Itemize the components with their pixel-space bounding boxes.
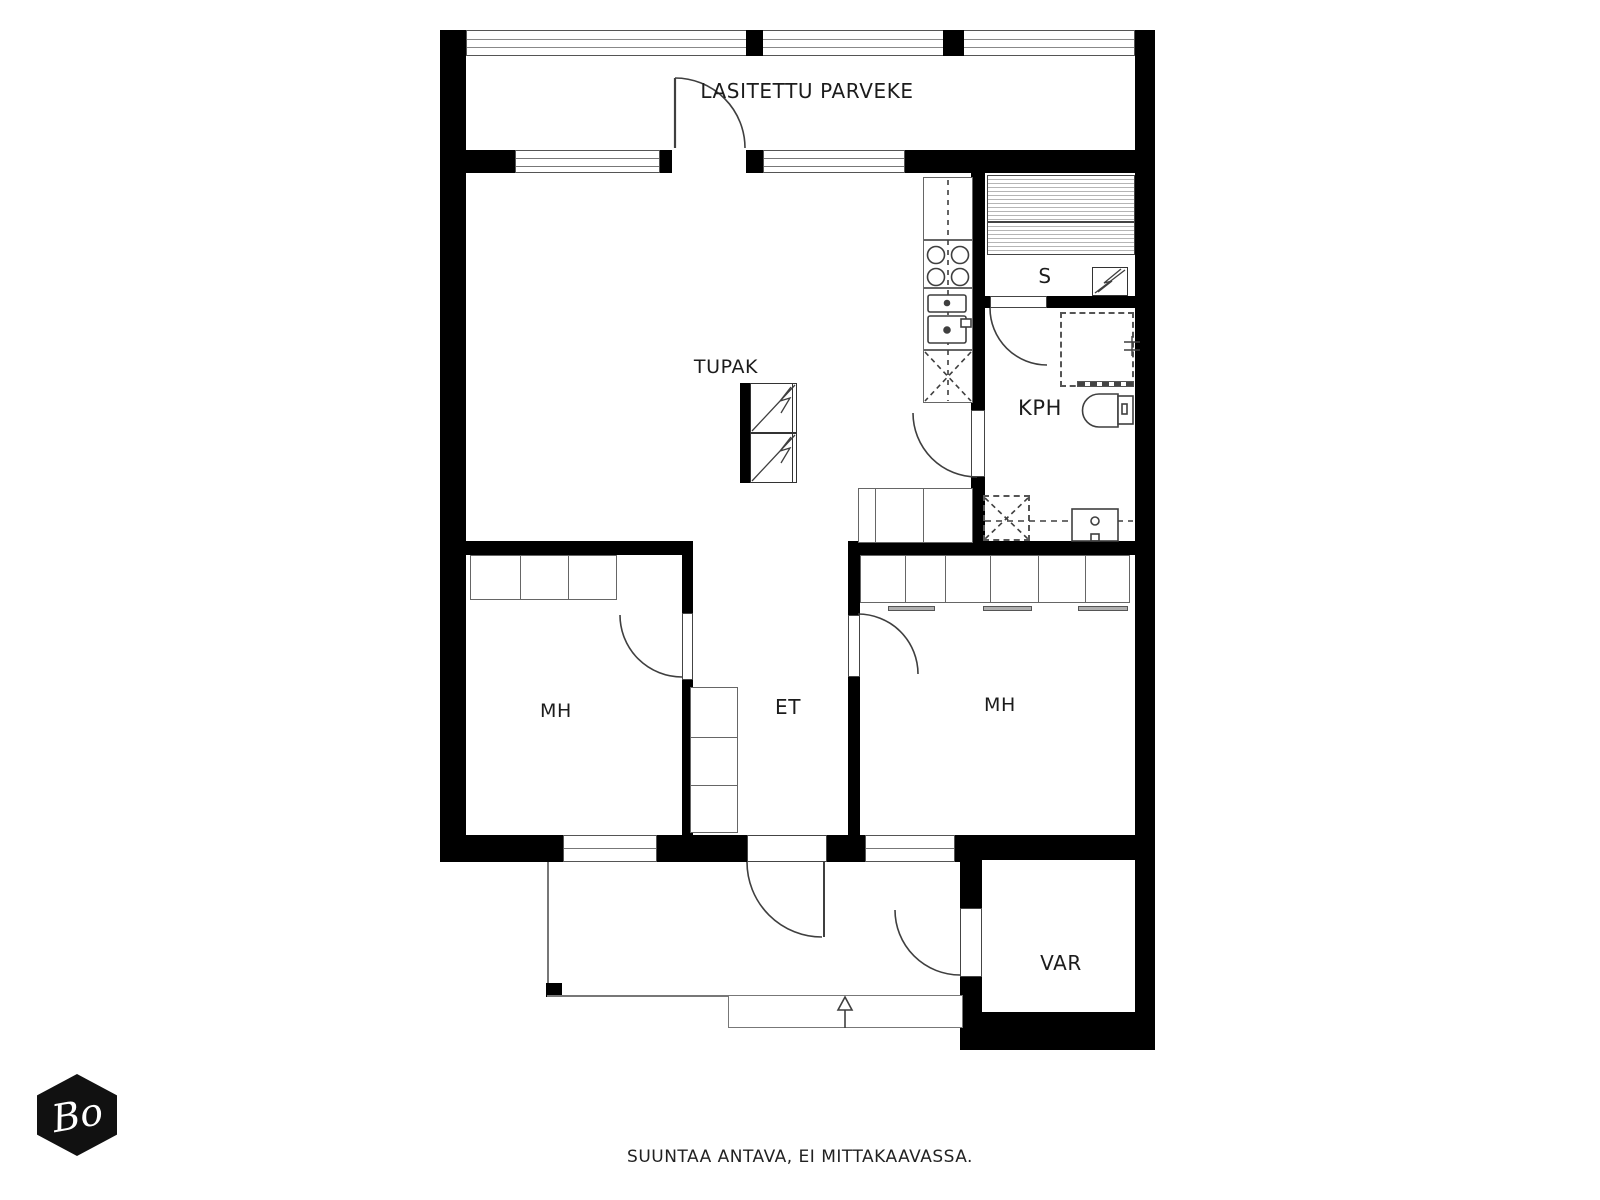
door-swing-arc: [620, 615, 682, 677]
room-label-entry-hall: ET: [775, 695, 801, 719]
sauna-heater-icon: [1092, 267, 1128, 296]
sliding-door-rail: [888, 606, 935, 611]
wall-storage-bottom: [960, 1012, 1155, 1050]
toilet-button: [1122, 404, 1127, 414]
door-swing-arc: [990, 308, 1047, 365]
washbasin-faucet: [1091, 534, 1099, 541]
wall-mid-left: [466, 541, 693, 555]
storage-door-leaf: [960, 908, 982, 977]
front-door-opening: [747, 835, 827, 862]
shower-drain: [1077, 381, 1134, 387]
window: [865, 835, 955, 862]
closet-divider: [690, 785, 738, 786]
room-label-sauna: S: [1038, 264, 1051, 288]
door-swing-arc: [913, 413, 977, 477]
tall-cabinet-icon: [923, 177, 973, 240]
cabinet-divider: [923, 488, 924, 543]
closet-divider: [690, 737, 738, 738]
door-swing-arc: [895, 910, 960, 975]
room-label-storage: VAR: [1040, 951, 1082, 975]
wall-storage-top: [960, 835, 1155, 860]
bedroom-right-door-leaf: [848, 615, 860, 677]
closet-divider: [568, 555, 569, 600]
fireplace-icon: [750, 433, 797, 483]
wall-right: [1135, 30, 1155, 1050]
room-label-bedroom-left: MH: [540, 700, 572, 722]
sauna-door-leaf: [990, 296, 1047, 308]
sauna-bench-lower: [987, 222, 1135, 255]
shower-area: [1060, 312, 1134, 387]
glazing-mullion: [943, 30, 964, 56]
entrance-porch: [728, 995, 963, 1028]
patio-boundary-line: [547, 862, 549, 984]
disclaimer-text: SUUNTAA ANTAVA, EI MITTAKAAVASSA.: [627, 1147, 973, 1167]
door-swing-arc: [858, 614, 918, 674]
closet-divider: [990, 555, 991, 603]
flue-wall: [740, 383, 750, 483]
closet: [690, 687, 738, 833]
window: [515, 150, 660, 173]
sink-unit: [923, 288, 973, 350]
bo-logo: Bo: [37, 1074, 117, 1156]
sliding-door-rail: [983, 606, 1032, 611]
dishwasher-icon: [923, 350, 973, 403]
washing-machine-icon: [983, 495, 1030, 541]
bedroom-left-door-leaf: [682, 613, 693, 680]
room-label-balcony: LASITETTU PARVEKE: [700, 79, 913, 103]
fireplace-icon: [750, 383, 797, 433]
washbasin-icon: [1072, 509, 1118, 541]
room-label-living-kitchen: TUPAK: [694, 356, 758, 378]
door-swing-arc: [747, 862, 822, 937]
balcony-glazing: [466, 30, 1135, 56]
closet: [860, 555, 1130, 603]
floor-plan: LASITETTU PARVEKE TUPAK S KPH MH ET MH V…: [0, 0, 1600, 1200]
closet-divider: [905, 555, 906, 603]
bo-logo-monogram: Bo: [49, 1092, 106, 1138]
toilet-icon: [1083, 394, 1119, 427]
bathroom-door-leaf: [971, 410, 985, 477]
balcony-door-opening: [672, 150, 746, 173]
room-label-bedroom-right: MH: [984, 694, 1016, 716]
cabinet-divider: [875, 488, 876, 543]
closet: [470, 555, 617, 600]
toilet-tank: [1118, 396, 1133, 424]
sauna-bench-upper: [987, 175, 1135, 222]
sliding-door-rail: [1078, 606, 1128, 611]
closet-divider: [1038, 555, 1039, 603]
washbasin-drain: [1091, 517, 1099, 525]
window: [763, 150, 905, 173]
wall-hall-bedroom: [848, 555, 860, 835]
window: [563, 835, 657, 862]
closet-divider: [1085, 555, 1086, 603]
wall-kitchen-bathroom: [971, 173, 985, 541]
closet-divider: [520, 555, 521, 600]
wall-mid-right: [848, 541, 1155, 555]
room-label-bathroom: KPH: [1018, 396, 1062, 420]
stove-icon: [923, 240, 973, 288]
fireplace-edge-line: [792, 383, 793, 483]
closet-divider: [945, 555, 946, 603]
glazing-mullion: [746, 30, 763, 56]
